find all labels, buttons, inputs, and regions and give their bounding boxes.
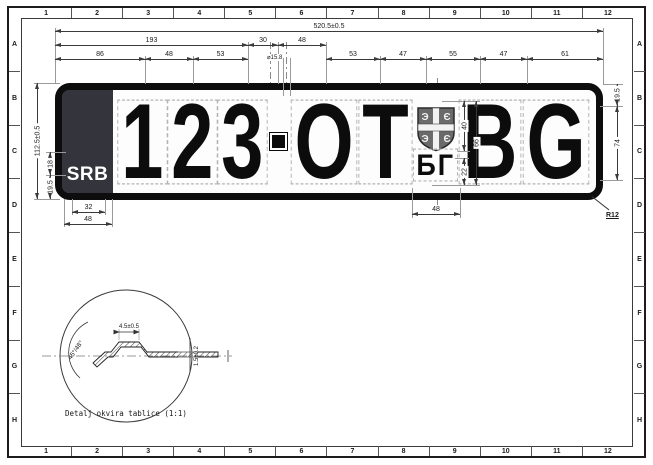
dim-total-width: 520.5±0.5 [55,31,603,32]
grid-col-label: 3 [122,446,173,456]
grid-col-label: 10 [480,8,531,18]
extension-line [600,106,623,107]
grid-col-label: 2 [71,8,122,18]
grid-row-label: D [9,178,20,232]
plate-digit: 1 [121,104,163,178]
dim-48-left: 48 [145,59,193,60]
grid-col-label: 5 [224,8,275,18]
grid-col-label: 5 [224,446,275,456]
dim-srb-margin: 19.5 [50,175,51,199]
grid-row-label: D [634,178,645,232]
dim-48-top: 48 [278,45,326,46]
extension-line [278,42,279,84]
grid-row-label: A [634,18,645,71]
hole-extension-line [283,58,284,96]
grid-col-label: 3 [122,8,173,18]
grid-col-label: 10 [480,446,531,456]
grid-col-label: 2 [71,446,122,456]
dim-32: 32 [72,212,105,213]
grid-ruler-top: 1 2 3 4 5 6 7 8 9 10 11 12 [21,8,633,18]
grid-row-label: H [9,393,20,447]
corner-radius-label: R12 [606,212,619,219]
grid-col-label: 8 [378,446,429,456]
extension-line [55,28,56,84]
license-plate: SRB 1 2 3 O T Э Є Э Є БГ B G [55,83,603,200]
grid-col-label: 11 [531,446,582,456]
svg-text:Є: Є [443,112,450,123]
grid-row-label: A [9,18,20,71]
grid-row-label: E [634,232,645,286]
dim-61: 61 [527,59,603,60]
svg-text:Э: Э [421,134,428,145]
grid-col-label: 1 [21,446,71,456]
grid-col-label: 4 [173,446,224,456]
extension-line [603,84,623,85]
dim-shield-height: 40 [464,101,465,151]
frame-detail-view: 45°/48° 4.5±0.5 1.5±0.2 Detalj okvira ta… [38,286,238,436]
extension-line [112,199,113,227]
construction-centerline [270,42,271,86]
dim-47-b: 47 [480,59,527,60]
dim-char-height: 74 [617,106,618,180]
extension-line [248,42,249,84]
grid-row-label: B [9,71,20,125]
dim-53-left: 53 [193,59,248,60]
grid-row-label: B [634,71,645,125]
grid-col-label: 7 [326,8,377,18]
separator-square [270,133,287,150]
plate-characters: 1 2 3 O T Э Є Э Є БГ B G [114,92,593,191]
rib-width-label: 4.5±0.5 [119,324,140,330]
extension-line [432,185,480,186]
plate-letter: G [527,104,586,178]
grid-row-label: E [9,232,20,286]
dim-47-a: 47 [380,59,426,60]
grid-col-label: 9 [429,8,480,18]
extension-line [34,199,60,200]
grid-row-label: G [634,340,645,394]
plate-letter: T [362,104,408,178]
dim-55: 55 [426,59,480,60]
extension-line [460,188,461,218]
thickness-label: 1.5±0.2 [194,345,200,366]
grid-col-label: 12 [582,446,633,456]
grid-col-label: 6 [275,446,326,456]
grid-col-label: 7 [326,446,377,456]
extension-line [458,151,470,152]
grid-col-label: 4 [173,8,224,18]
dim-plate-height: 112.5±0.5 [37,83,38,199]
hole-diameter-label: ⌀15.8 [266,54,283,61]
grid-ruler-left: A B C D E F G H [9,18,20,447]
svg-text:Є: Є [443,134,450,145]
grid-col-label: 9 [429,446,480,456]
grid-row-label: C [9,125,20,179]
extension-line [105,199,106,215]
dim-193: 193 [55,45,248,46]
dim-emblem-height: 66 [476,101,477,185]
grid-col-label: 1 [21,8,71,18]
dim-30: 30 [248,45,278,46]
svg-text:Э: Э [421,112,428,123]
grid-ruler-bottom: 1 2 3 4 5 6 7 8 9 10 11 12 [21,446,633,456]
extension-line [600,180,623,181]
dim-86: 86 [55,59,145,60]
dim-srb-height: 18 [50,152,51,175]
drawing-sheet: 1 2 3 4 5 6 7 8 9 10 11 12 1 2 3 4 5 6 7… [0,0,653,465]
country-band: SRB [62,90,113,193]
plate-letter: B [463,104,518,178]
country-code-label: SRB [67,164,109,186]
grid-col-label: 8 [378,8,429,18]
grid-row-label: C [634,125,645,179]
grid-col-label: 6 [275,8,326,18]
plate-letter: O [295,104,354,178]
grid-row-label: G [9,340,20,394]
dim-48-srb: 48 [64,224,112,225]
detail-caption: Detalj okvira tablice (1:1) [65,409,187,418]
serbian-shield-icon: Э Є Э Є [416,106,456,152]
plate-digit: 3 [221,104,263,178]
grid-col-label: 11 [531,8,582,18]
grid-col-label: 12 [582,8,633,18]
extension-line [603,28,604,84]
grid-row-label: F [634,286,645,340]
plate-digit: 2 [171,104,213,178]
dim-char-margin-top: 19.5 [617,84,618,106]
extension-line [326,42,327,84]
dim-emblem-width: 48 [412,214,460,215]
city-code-label: БГ [416,152,455,178]
emblem-column: Э Є Э Є БГ [416,106,456,177]
dim-city-height: 22 [464,158,465,185]
grid-ruler-right: A B C D E F G H [634,18,645,447]
hole-extension-line [290,58,291,96]
grid-row-label: F [9,286,20,340]
dim-53-right: 53 [326,59,380,60]
grid-row-label: H [634,393,645,447]
